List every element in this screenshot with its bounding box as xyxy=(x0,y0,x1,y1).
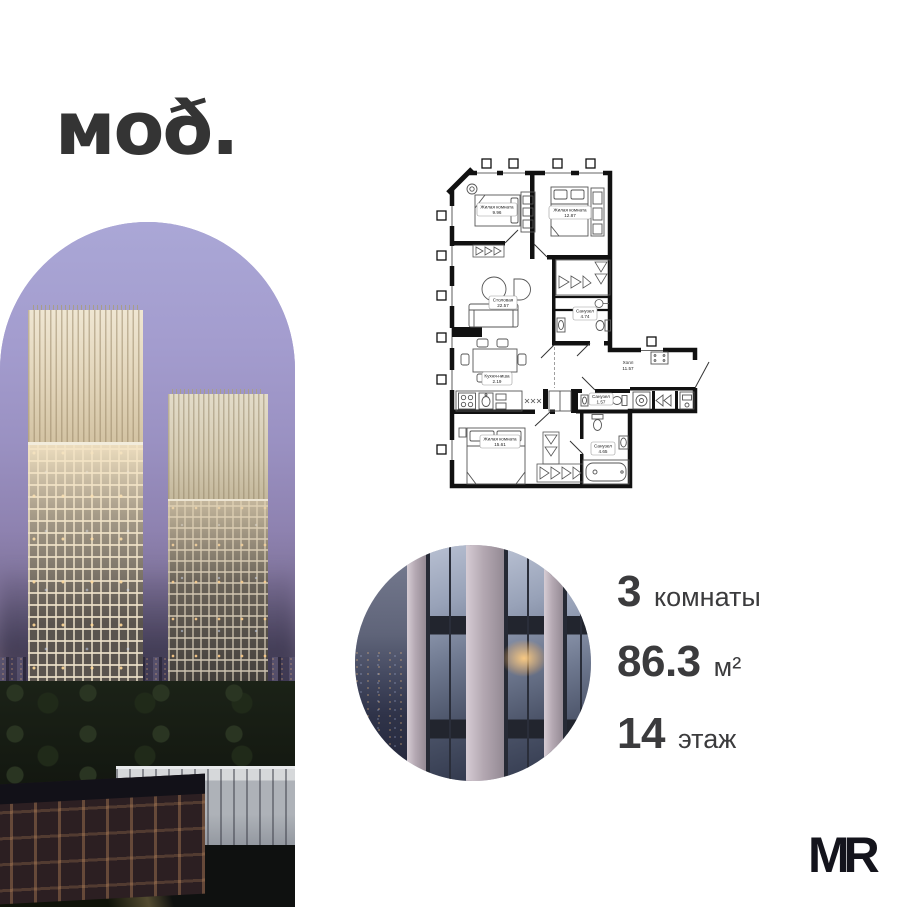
svg-text:4.65: 4.65 xyxy=(599,449,608,454)
listing-card: моð. xyxy=(0,0,907,907)
svg-text:11.57: 11.57 xyxy=(622,366,634,371)
svg-text:Санузел: Санузел xyxy=(576,309,594,314)
lit-window-glow xyxy=(504,545,544,781)
tower-right-crown xyxy=(168,394,268,501)
floor-label: этаж xyxy=(678,726,736,753)
svg-text:Холл: Холл xyxy=(623,360,634,365)
svg-text:Столовая: Столовая xyxy=(493,298,514,303)
rooms-label: комнаты xyxy=(654,584,761,611)
lit-window-glow xyxy=(563,545,591,781)
svg-text:22.57: 22.57 xyxy=(497,303,509,308)
rooms-value: 3 xyxy=(617,570,641,614)
area-spec: 86.3 м² xyxy=(617,640,741,684)
svg-text:1.57: 1.57 xyxy=(597,400,606,405)
rooms-spec: 3 комнаты xyxy=(617,570,761,614)
area-unit: м² xyxy=(714,654,742,681)
svg-text:Жилая комната: Жилая комната xyxy=(480,205,514,210)
tower-left-crown xyxy=(28,310,143,445)
svg-text:Кухня-ниша: Кухня-ниша xyxy=(484,374,510,379)
facade-photo-circle xyxy=(355,545,591,781)
svg-text:Санузел: Санузел xyxy=(592,394,610,399)
svg-text:15.61: 15.61 xyxy=(494,442,506,447)
svg-text:12.87: 12.87 xyxy=(564,213,576,218)
svg-text:9.96: 9.96 xyxy=(493,210,502,215)
floor-plan: Жилая комната 9.96 Жилая комната 12.87 С… xyxy=(425,146,717,506)
floor-spec: 14 этаж xyxy=(617,712,736,756)
mod-logo: моð. xyxy=(55,92,237,166)
city-lights xyxy=(355,651,407,750)
mr-group-logo: MR xyxy=(808,830,874,880)
facade-pilaster xyxy=(544,545,563,781)
area-value: 86.3 xyxy=(617,640,701,684)
building-photo-arch xyxy=(0,222,295,907)
brick-building xyxy=(0,774,205,905)
svg-text:Жилая комната: Жилая комната xyxy=(553,208,587,213)
floor-value: 14 xyxy=(617,712,665,756)
facade-pilaster xyxy=(466,545,504,781)
svg-text:4.74: 4.74 xyxy=(581,314,590,319)
svg-text:Жилая комната: Жилая комната xyxy=(483,437,517,442)
facade-pilaster xyxy=(407,545,426,781)
svg-text:Санузел: Санузел xyxy=(594,444,612,449)
svg-text:2.19: 2.19 xyxy=(493,379,502,384)
